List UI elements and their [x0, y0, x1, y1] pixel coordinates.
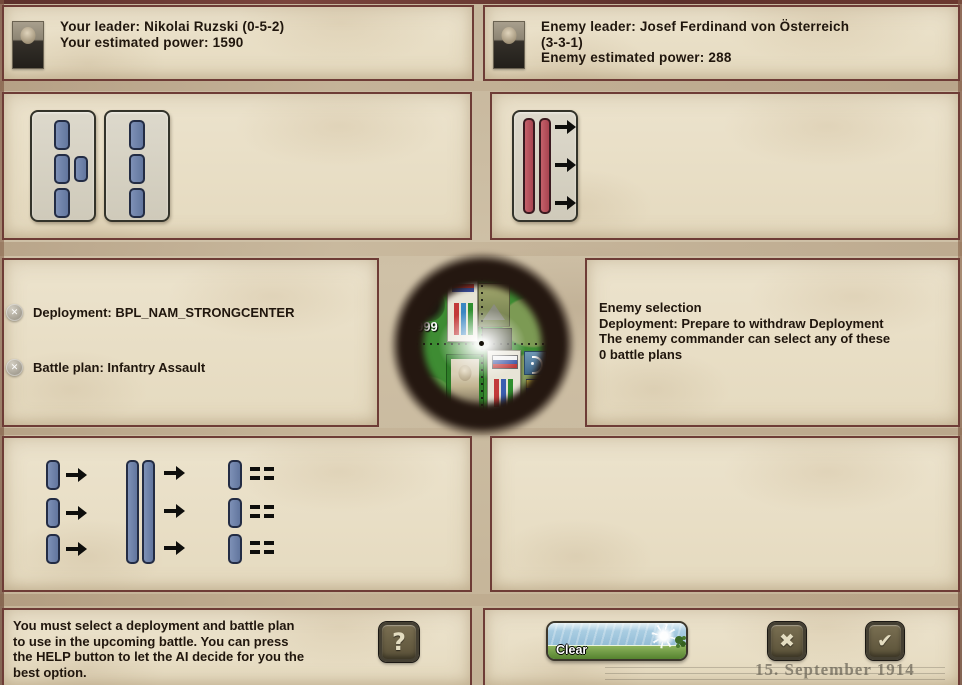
scope-ring — [388, 250, 577, 439]
formation-single-line-icon[interactable] — [104, 110, 170, 222]
advance-arrow-icon — [164, 466, 186, 480]
player-leader-portrait — [12, 21, 44, 69]
gap-streak — [0, 594, 962, 606]
clear-button-label: Clear — [556, 643, 587, 657]
unit-bar — [46, 498, 60, 528]
enemy-leader-panel: Enemy leader: Josef Ferdinand von Österr… — [483, 5, 960, 81]
battle-planning-screen: Your leader: Nikolai Ruzski (0-5-2) Your… — [0, 0, 962, 685]
unit-bar — [74, 156, 88, 182]
advance-arrow-icon — [555, 196, 577, 210]
player-leader-panel: Your leader: Nikolai Ruzski (0-5-2) Your… — [2, 5, 474, 81]
advance-arrow-icon — [164, 541, 186, 555]
unit-bar — [129, 120, 145, 150]
unit-bar — [54, 154, 70, 184]
sun-icon — [650, 622, 678, 650]
remove-battle-plan-icon[interactable]: ✕ — [6, 359, 23, 376]
enemy-battle-plan-options-panel — [490, 436, 960, 592]
cancel-button[interactable]: ✖ — [768, 622, 806, 660]
enemy-unit-bar — [523, 118, 535, 214]
player-selection-panel: ✕ Deployment: BPL_NAM_STRONGCENTER ✕ Bat… — [2, 258, 379, 427]
hold-dashes-icon — [250, 467, 274, 471]
unit-bar — [46, 534, 60, 564]
advance-arrow-icon — [66, 506, 88, 520]
plan-hold-line-icon[interactable] — [214, 438, 324, 590]
enemy-unit-bar — [539, 118, 551, 214]
player-leader-info: Your leader: Nikolai Ruzski (0-5-2) Your… — [60, 19, 284, 50]
unit-bar — [142, 460, 155, 564]
formation-strong-center-icon[interactable] — [30, 110, 96, 222]
unit-bar — [228, 498, 242, 528]
unit-bar — [129, 154, 145, 184]
enemy-leader-portrait — [493, 21, 525, 69]
formation-two-line-advance-icon[interactable] — [512, 110, 578, 222]
enemy-selection-panel: Enemy selection Deployment: Prepare to w… — [585, 258, 960, 427]
battle-plan-selection-label: Battle plan: Infantry Assault — [33, 360, 205, 375]
advance-arrow-icon — [66, 542, 88, 556]
footer-help-panel: You must select a deployment and battle … — [2, 608, 472, 685]
plan-mass-frontal-assault-icon[interactable] — [114, 438, 214, 590]
unit-bar — [228, 460, 242, 490]
enemy-selection-info: Enemy selection Deployment: Prepare to w… — [599, 300, 951, 362]
enemy-deployment-options-panel — [490, 92, 960, 240]
unit-bar — [129, 188, 145, 218]
advance-arrow-icon — [66, 468, 88, 482]
confirm-button[interactable]: ✔ — [866, 622, 904, 660]
remove-deployment-icon[interactable]: ✕ — [6, 304, 23, 321]
plan-three-column-advance-icon[interactable] — [4, 438, 114, 590]
hold-dashes-icon — [250, 514, 274, 518]
unit-bar — [46, 460, 60, 490]
top-border-bar — [0, 0, 962, 4]
help-button[interactable]: ? — [379, 622, 419, 662]
advance-arrow-icon — [555, 120, 577, 134]
player-deployment-options-panel — [2, 92, 472, 240]
clear-button[interactable]: Clear — [546, 621, 688, 661]
enemy-leader-info: Enemy leader: Josef Ferdinand von Österr… — [541, 19, 849, 66]
gap-streak — [0, 81, 962, 91]
hold-dashes-icon — [250, 550, 274, 554]
unit-bar — [126, 460, 139, 564]
date-watermark: 15. September 1914 — [755, 660, 915, 680]
deployment-selection-row: ✕ Deployment: BPL_NAM_STRONGCENTER — [6, 304, 294, 321]
footer-actions-panel: 15. September 1914 Clear ✖ ✔ — [483, 608, 960, 685]
hold-dashes-icon — [250, 541, 274, 545]
battle-plan-selection-row: ✕ Battle plan: Infantry Assault — [6, 359, 205, 376]
unit-bar — [228, 534, 242, 564]
hold-dashes-icon — [250, 505, 274, 509]
footer-help-text: You must select a deployment and battle … — [13, 618, 385, 680]
hold-dashes-icon — [250, 476, 274, 480]
battle-plan-options-panel — [2, 436, 472, 592]
gear-bush-icon — [675, 636, 683, 644]
advance-arrow-icon — [164, 504, 186, 518]
deployment-selection-label: Deployment: BPL_NAM_STRONGCENTER — [33, 305, 294, 320]
battle-scope: 999 — [392, 254, 573, 435]
advance-arrow-icon — [555, 158, 577, 172]
unit-bar — [54, 120, 70, 150]
unit-bar — [54, 188, 70, 218]
